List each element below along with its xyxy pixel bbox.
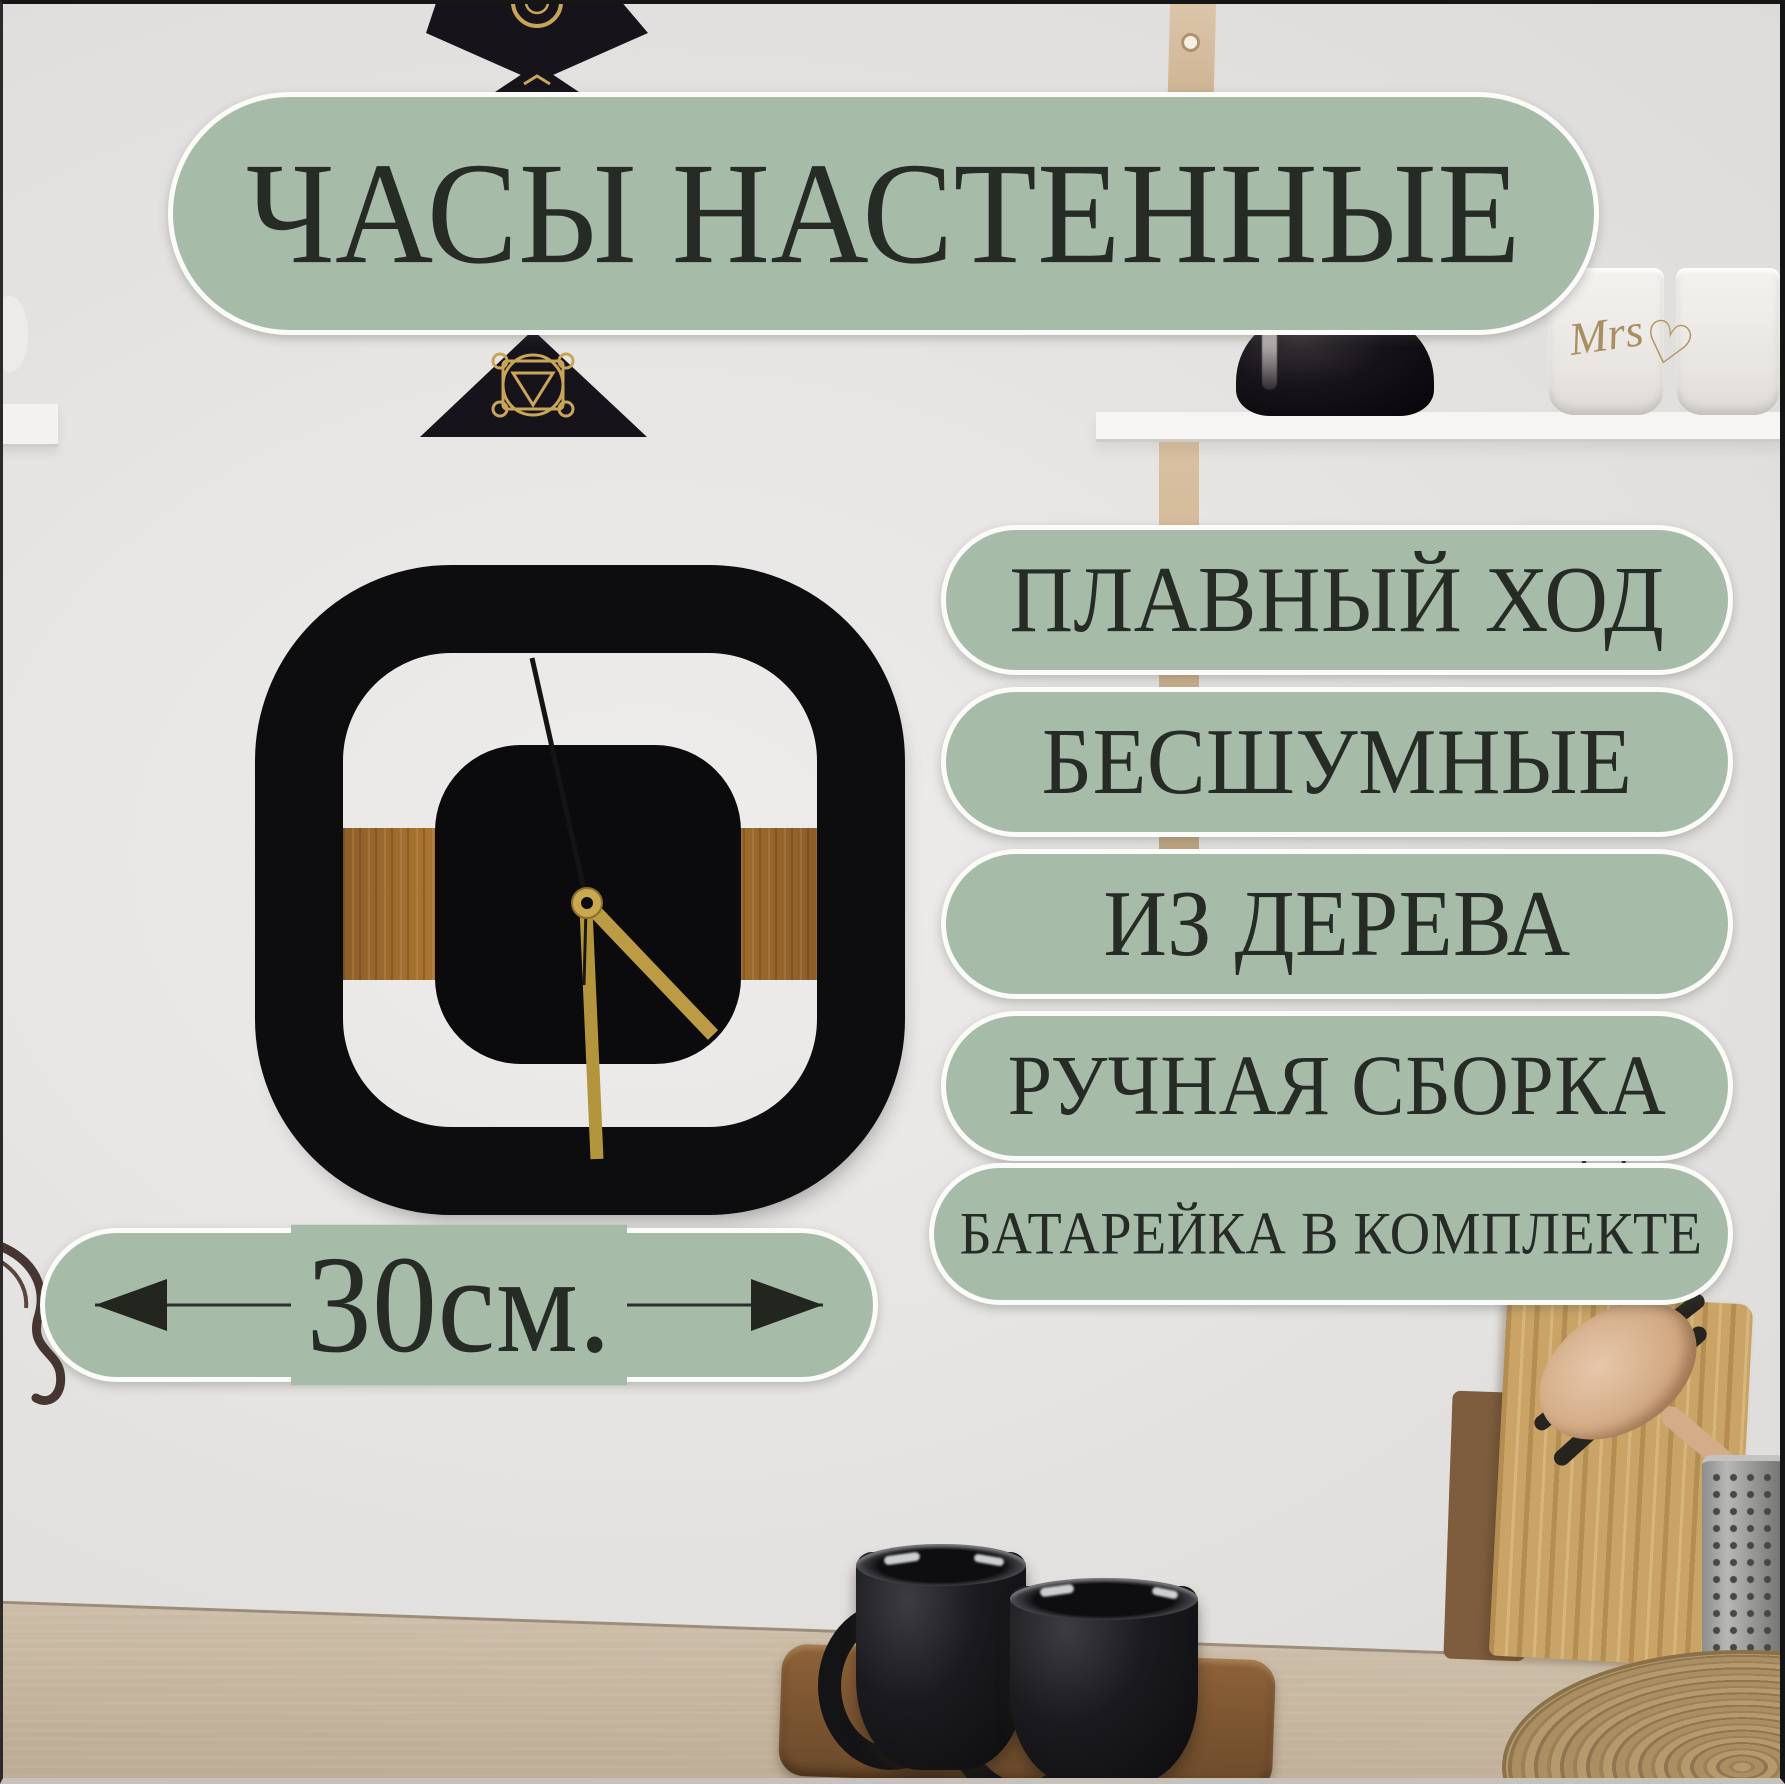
feature-badge-silent: БЕСШУМНЫЕ xyxy=(941,687,1733,837)
feature-label: БЕСШУМНЫЕ xyxy=(1042,708,1633,816)
arrow-right-icon xyxy=(751,1279,823,1331)
minute-hand-seam xyxy=(584,909,586,985)
size-dimension-pill: 30см. xyxy=(40,1228,878,1382)
clock-hands xyxy=(255,565,905,1215)
clock-minute-hand xyxy=(586,909,597,1159)
feature-label: БАТАРЕЙКА В КОМПЛЕКТЕ xyxy=(960,1200,1703,1268)
arrow-left-icon xyxy=(95,1279,167,1331)
left-shelf-stub xyxy=(0,404,58,447)
leather-strap xyxy=(1168,0,1217,97)
clock-second-hand xyxy=(532,658,587,903)
product-card-image: Mrs ♡ xyxy=(0,0,1785,1784)
left-kettle-edge xyxy=(0,296,28,372)
black-mug-right xyxy=(1010,1586,1198,1784)
pennant-bottom xyxy=(420,330,647,437)
black-mug-left xyxy=(856,1552,1026,1770)
feature-label: ИЗ ДЕРЕВА xyxy=(1103,870,1570,978)
feature-label: ПЛАВНЫЙ ХОД xyxy=(1009,546,1664,654)
product-title: ЧАСЫ НАСТЕННЫЕ xyxy=(246,130,1521,297)
feature-badge-smooth-movement: ПЛАВНЫЙ ХОД xyxy=(941,525,1733,675)
product-title-banner: ЧАСЫ НАСТЕННЫЕ xyxy=(168,92,1599,335)
clock-hour-hand xyxy=(588,904,713,1035)
clock-pivot-hole xyxy=(581,897,593,909)
feature-badge-wooden: ИЗ ДЕРЕВА xyxy=(941,849,1733,999)
mug-rim xyxy=(1010,1578,1198,1620)
feature-badge-battery-included: БАТАРЕЙКА В КОМПЛЕКТЕ xyxy=(929,1163,1733,1305)
wall-clock xyxy=(255,565,905,1215)
jar-highlight xyxy=(1262,328,1277,390)
strap-rivet xyxy=(1184,36,1197,49)
feature-badge-hand-assembled: РУЧНАЯ СБОРКА xyxy=(941,1011,1733,1161)
size-label: 30см. xyxy=(291,1225,628,1386)
feature-label: РУЧНАЯ СБОРКА xyxy=(1008,1037,1667,1134)
wall-shelf xyxy=(1096,412,1785,442)
